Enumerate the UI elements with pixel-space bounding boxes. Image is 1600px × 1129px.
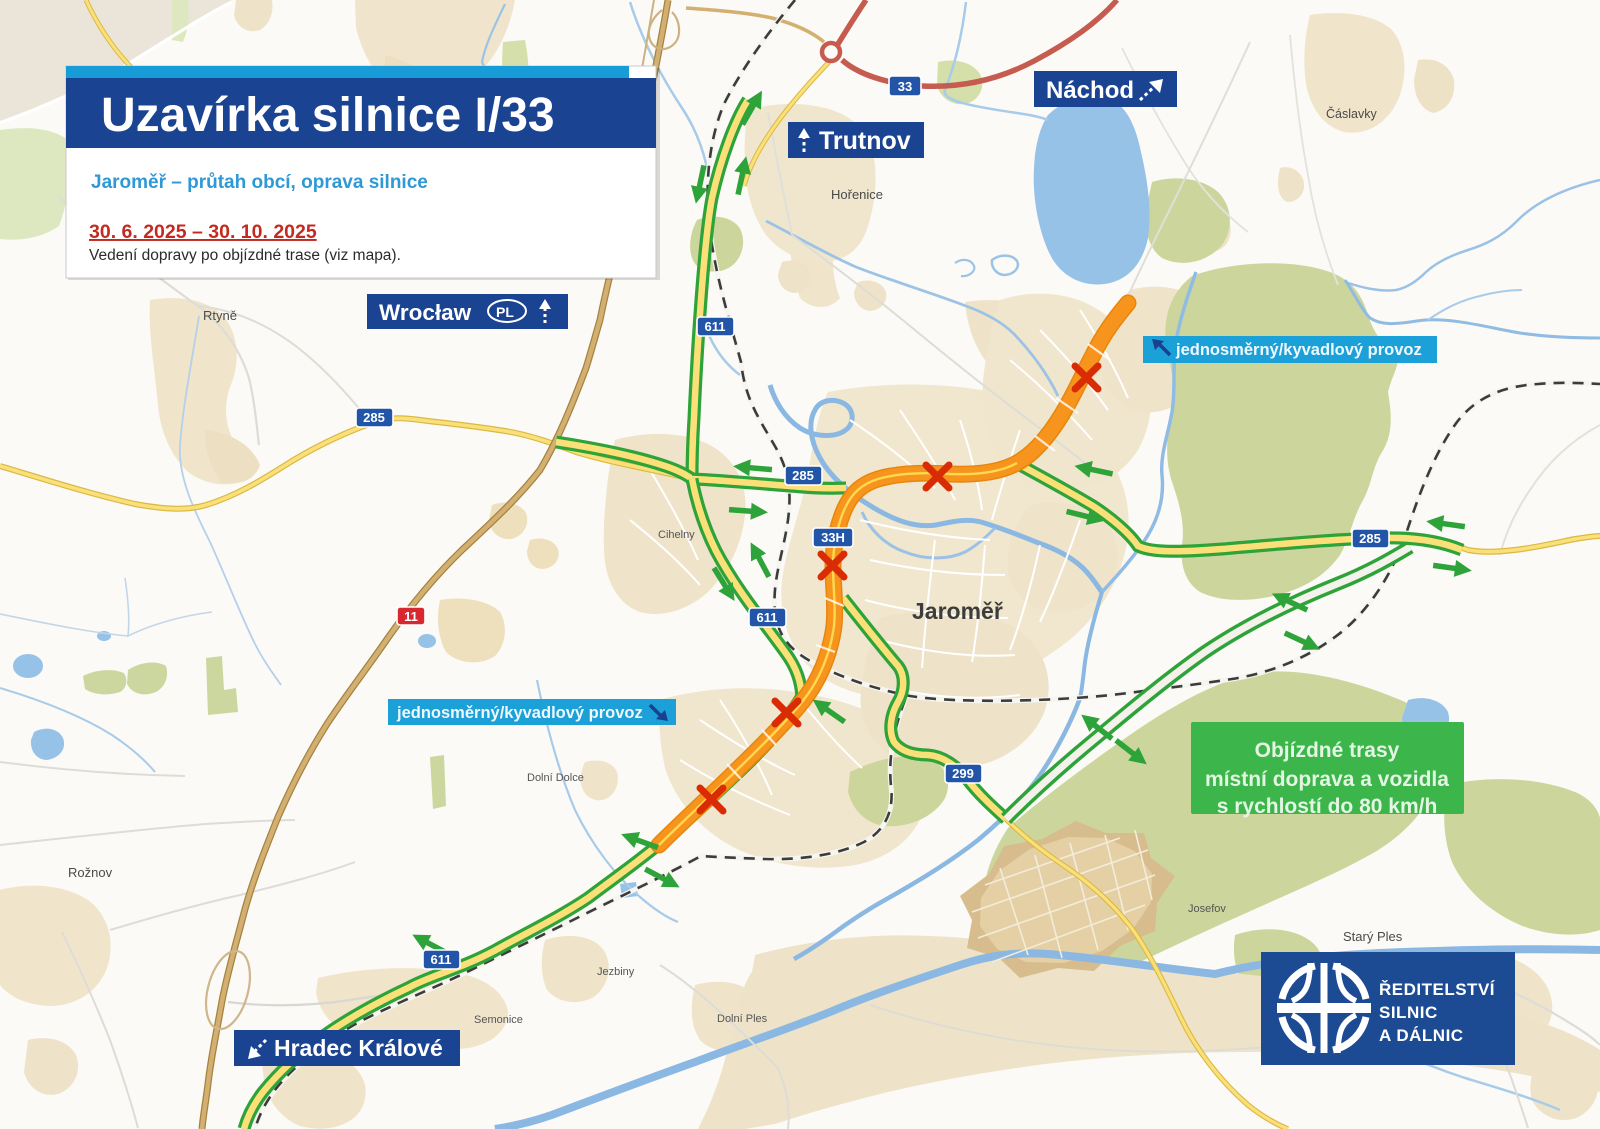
svg-text:Wrocław: Wrocław	[379, 300, 472, 325]
svg-text:ŘEDITELSTVÍ: ŘEDITELSTVÍ	[1379, 980, 1496, 999]
svg-text:611: 611	[431, 952, 452, 967]
svg-text:33H: 33H	[821, 530, 845, 545]
svg-text:285: 285	[1359, 531, 1381, 546]
svg-text:611: 611	[757, 610, 778, 625]
svg-text:33: 33	[898, 79, 912, 94]
svg-text:Cihelny: Cihelny	[658, 529, 695, 541]
svg-text:285: 285	[792, 468, 814, 483]
svg-text:Hořenice: Hořenice	[831, 187, 883, 202]
svg-text:Jezbiny: Jezbiny	[597, 966, 635, 978]
svg-text:285: 285	[363, 410, 385, 425]
svg-text:Semonice: Semonice	[474, 1014, 523, 1026]
svg-text:Trutnov: Trutnov	[819, 127, 911, 155]
svg-text:Čáslavky: Čáslavky	[1326, 106, 1377, 121]
svg-text:PL: PL	[496, 304, 514, 320]
svg-text:Objízdné trasy: Objízdné trasy	[1255, 739, 1400, 762]
svg-text:Josefov: Josefov	[1188, 903, 1226, 915]
svg-text:Vedení dopravy po objízdné tra: Vedení dopravy po objízdné trase (viz ma…	[89, 247, 401, 264]
svg-text:299: 299	[952, 766, 974, 781]
svg-text:Rožnov: Rožnov	[68, 865, 113, 880]
svg-text:611: 611	[705, 319, 726, 334]
svg-text:A DÁLNIC: A DÁLNIC	[1379, 1026, 1464, 1045]
svg-text:Starý Ples: Starý Ples	[1343, 929, 1403, 944]
svg-text:Dolní Ples: Dolní Ples	[717, 1013, 768, 1025]
svg-text:Hradec Králové: Hradec Králové	[274, 1035, 443, 1061]
svg-text:Dolní Dolce: Dolní Dolce	[527, 772, 584, 784]
svg-text:místní doprava a vozidla: místní doprava a vozidla	[1205, 768, 1449, 791]
svg-text:jednosměrný/kyvadlový provoz: jednosměrný/kyvadlový provoz	[1175, 341, 1422, 359]
svg-text:SILNIC: SILNIC	[1379, 1003, 1438, 1022]
svg-text:Jaroměř – průtah obcí, oprava: Jaroměř – průtah obcí, oprava silnice	[91, 172, 428, 193]
svg-text:Rtyně: Rtyně	[203, 308, 237, 323]
svg-text:Jaroměř: Jaroměř	[912, 598, 1003, 624]
svg-text:11: 11	[404, 609, 418, 624]
svg-text:30. 6. 2025 – 30. 10. 2025: 30. 6. 2025 – 30. 10. 2025	[89, 221, 317, 243]
svg-text:Uzavírka silnice I/33: Uzavírka silnice I/33	[101, 89, 555, 142]
svg-text:s rychlostí do 80 km/h: s rychlostí do 80 km/h	[1217, 795, 1438, 818]
svg-text:Náchod: Náchod	[1046, 77, 1134, 104]
svg-text:jednosměrný/kyvadlový provoz: jednosměrný/kyvadlový provoz	[396, 704, 643, 722]
